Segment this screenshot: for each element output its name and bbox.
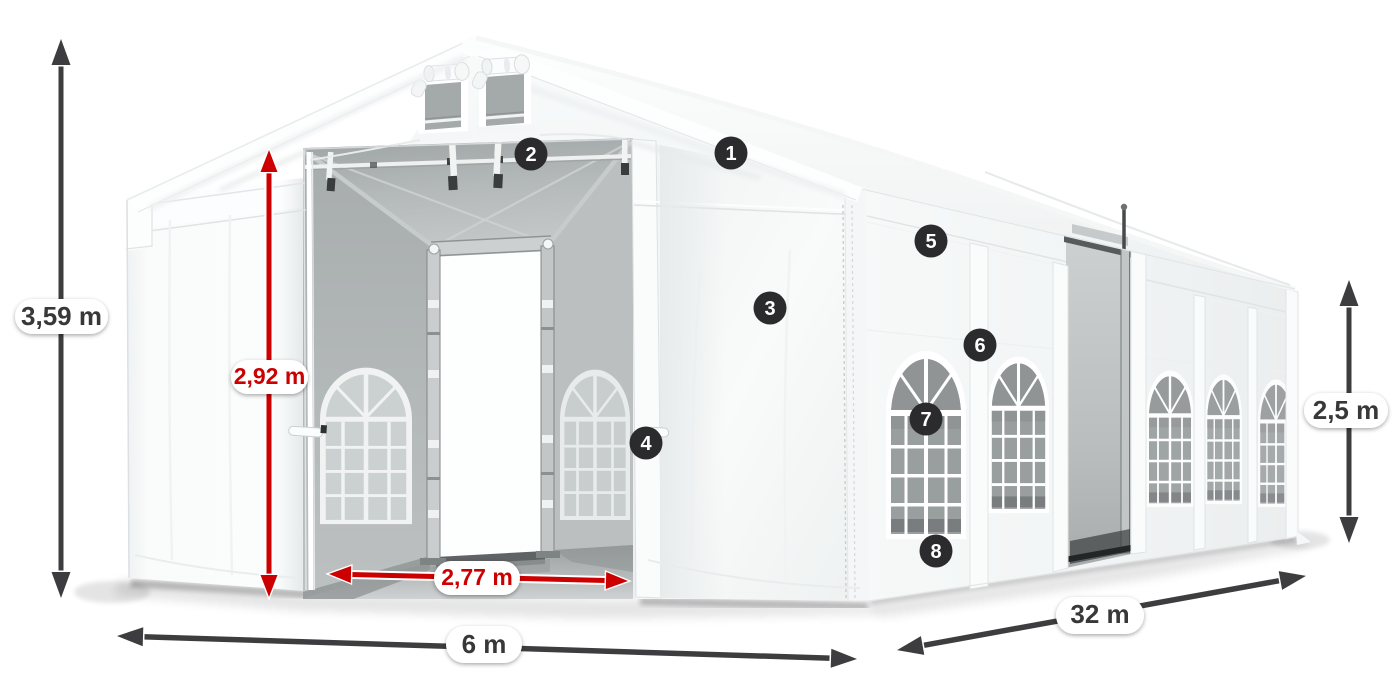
- svg-text:3: 3: [764, 298, 775, 320]
- svg-text:1: 1: [725, 143, 736, 165]
- svg-text:7: 7: [920, 409, 931, 431]
- svg-text:2,92 m: 2,92 m: [234, 363, 306, 389]
- svg-text:2,5 m: 2,5 m: [1313, 395, 1380, 425]
- svg-text:4: 4: [640, 433, 652, 455]
- svg-text:32 m: 32 m: [1070, 599, 1129, 629]
- svg-text:6 m: 6 m: [462, 629, 507, 659]
- svg-text:2,77 m: 2,77 m: [441, 564, 513, 590]
- svg-text:5: 5: [925, 231, 936, 253]
- svg-text:6: 6: [974, 335, 985, 357]
- svg-text:3,59 m: 3,59 m: [21, 301, 102, 331]
- svg-text:2: 2: [525, 144, 536, 166]
- svg-text:8: 8: [930, 541, 941, 563]
